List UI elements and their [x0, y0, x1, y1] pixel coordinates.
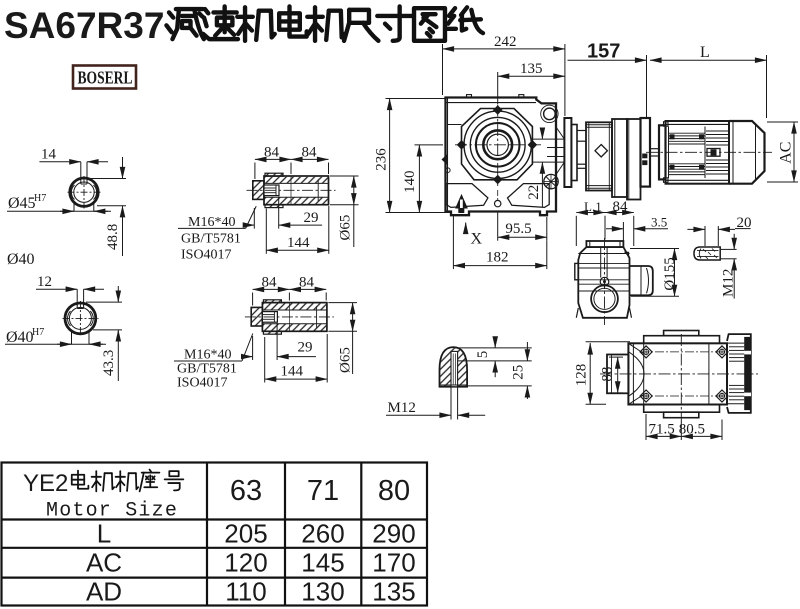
svg-text:H7: H7: [32, 327, 44, 338]
svg-text:29: 29: [298, 339, 313, 355]
svg-text:205: 205: [224, 519, 267, 549]
svg-text:12: 12: [37, 274, 52, 290]
svg-text:48.8: 48.8: [105, 224, 121, 250]
svg-text:157: 157: [587, 41, 620, 63]
svg-text:80: 80: [378, 475, 410, 507]
svg-text:170: 170: [372, 548, 415, 578]
svg-text:84: 84: [302, 145, 318, 161]
svg-text:Motor Size: Motor Size: [46, 500, 178, 523]
svg-text:3.5: 3.5: [651, 215, 667, 230]
svg-text:20: 20: [737, 215, 752, 231]
svg-text:L: L: [700, 44, 710, 61]
svg-text:260: 260: [301, 519, 344, 549]
svg-text:L.1: L.1: [584, 199, 602, 214]
svg-text:Ø45: Ø45: [8, 195, 36, 212]
svg-text:25: 25: [510, 365, 526, 380]
svg-text:135: 135: [520, 61, 543, 77]
svg-text:84: 84: [299, 275, 315, 291]
svg-text:M16*40: M16*40: [184, 348, 231, 363]
svg-text:M12: M12: [388, 400, 416, 416]
svg-text:140: 140: [402, 171, 418, 194]
svg-text:Ø155: Ø155: [662, 257, 678, 290]
svg-text:ISO4017: ISO4017: [181, 248, 232, 263]
svg-text:M16*40: M16*40: [188, 215, 235, 230]
svg-text:128: 128: [573, 364, 589, 387]
svg-text:182: 182: [486, 250, 509, 266]
svg-text:M12: M12: [721, 269, 737, 297]
svg-text:AC: AC: [86, 548, 122, 578]
svg-text:BOSERL: BOSERL: [78, 68, 133, 88]
svg-text:29: 29: [304, 210, 319, 226]
svg-text:H7: H7: [34, 193, 46, 204]
svg-text:120: 120: [224, 548, 267, 578]
svg-text:AD: AD: [86, 577, 122, 607]
svg-text:110: 110: [225, 577, 266, 607]
svg-text:GB/T5781: GB/T5781: [181, 232, 241, 247]
svg-text:84: 84: [264, 145, 280, 161]
svg-text:144: 144: [287, 235, 310, 251]
svg-text:135: 135: [372, 577, 415, 607]
svg-text:95.5: 95.5: [505, 221, 531, 237]
svg-text:Ø40: Ø40: [7, 251, 35, 268]
svg-text:YE2: YE2: [23, 470, 68, 497]
svg-text:AC: AC: [778, 142, 795, 164]
svg-text:63: 63: [230, 475, 262, 507]
svg-text:Ø65: Ø65: [338, 347, 354, 373]
svg-text:242: 242: [494, 34, 517, 50]
svg-text:80.5: 80.5: [679, 422, 705, 438]
svg-text:84: 84: [262, 275, 278, 291]
svg-text:71.5: 71.5: [649, 422, 675, 438]
svg-text:88: 88: [599, 367, 615, 382]
svg-text:SA67R37: SA67R37: [4, 5, 164, 46]
svg-text:Ø65: Ø65: [338, 215, 354, 241]
svg-text:Ø40: Ø40: [6, 329, 34, 346]
svg-text:ISO4017: ISO4017: [177, 376, 228, 391]
svg-text:84: 84: [613, 199, 629, 215]
svg-text:144: 144: [281, 364, 304, 380]
svg-text:290: 290: [372, 519, 415, 549]
svg-text:5: 5: [475, 351, 491, 359]
svg-text:22: 22: [526, 185, 542, 200]
svg-text:X: X: [471, 231, 483, 248]
svg-text:43.3: 43.3: [101, 350, 117, 376]
svg-text:145: 145: [301, 548, 344, 578]
svg-text:GB/T5781: GB/T5781: [177, 362, 237, 377]
svg-text:236: 236: [374, 148, 390, 171]
svg-text:130: 130: [301, 577, 344, 607]
svg-text:71: 71: [307, 475, 339, 507]
svg-text:L: L: [97, 519, 111, 549]
svg-text:14: 14: [41, 147, 57, 163]
